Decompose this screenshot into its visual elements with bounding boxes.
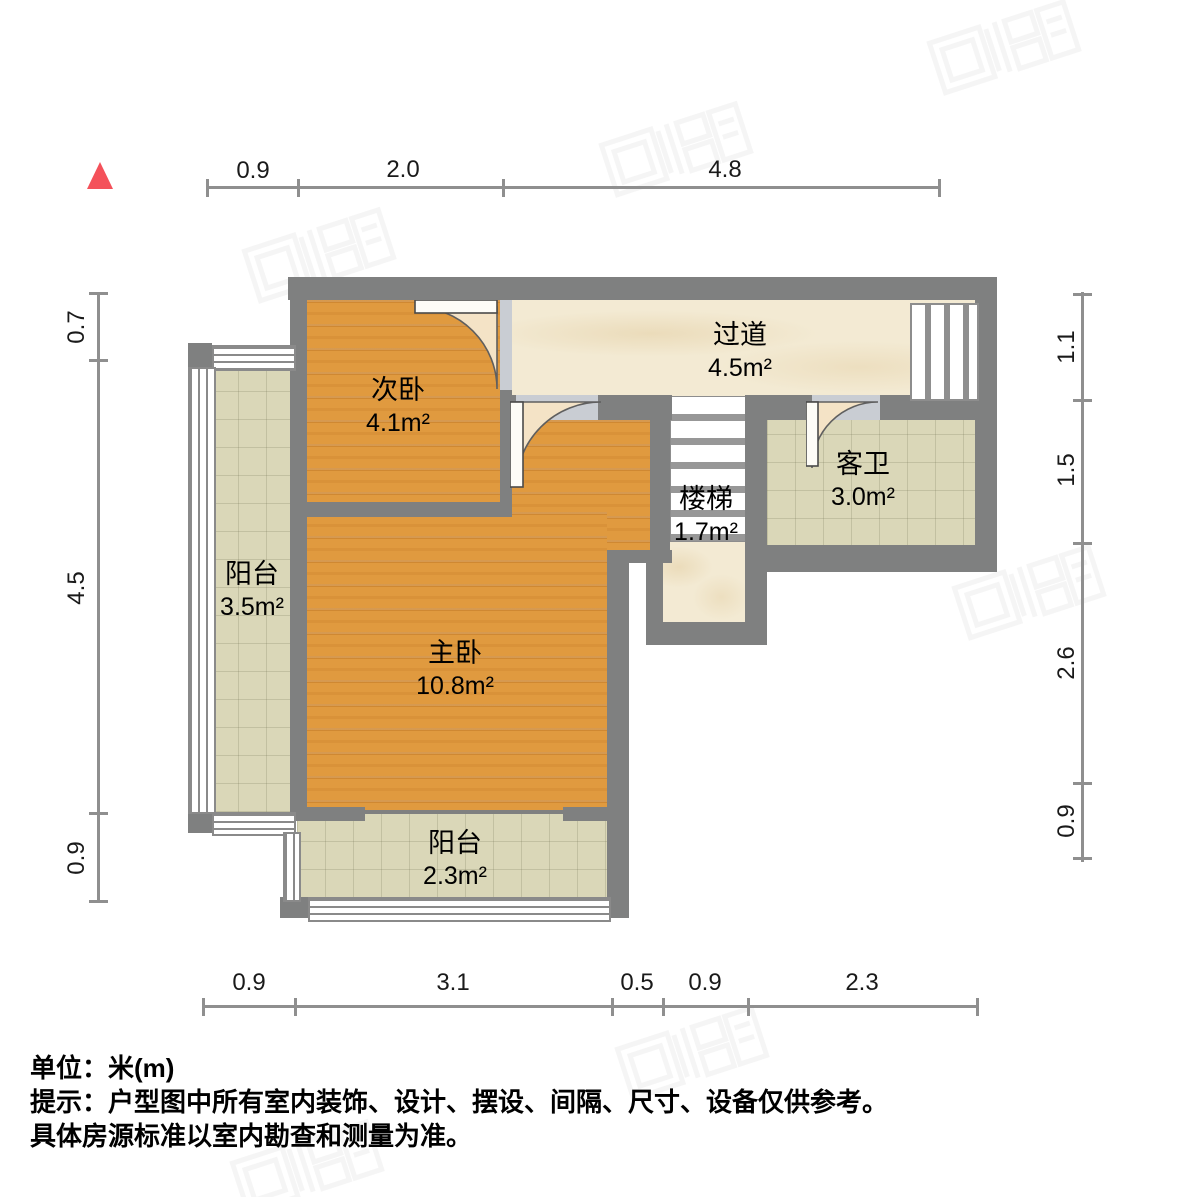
staircase-upper-flight [910,303,979,401]
dimension-tick [294,998,297,1016]
dimension-value: 0.9 [63,841,91,874]
watermark [923,0,1088,103]
dimension-value: 0.9 [236,157,269,185]
window-balcony-bottom-side [283,832,301,902]
disclaimer-line-2: 具体房源标准以室内勘查和测量为准。 [30,1119,888,1153]
dimension-value: 3.1 [436,969,469,997]
dimension-tick [1073,293,1092,296]
dimension-value: 0.9 [1053,804,1081,837]
disclaimer-line-1: 提示：户型图中所有室内装饰、设计、摆设、间隔、尺寸、设备仅供参考。 [30,1085,888,1119]
dimension-tick [938,179,941,197]
room-area: 2.3m² [423,860,487,893]
room-label-guest-bathroom: 客卫 3.0m² [831,448,895,514]
dimension-tick [206,179,209,197]
room-name: 客卫 [831,448,895,481]
wall-block [188,343,212,368]
room-area: 10.8m² [416,670,494,703]
dimension-tick [1073,857,1092,860]
wall-block [563,807,607,821]
wall-bathroom-bottom [745,545,997,572]
dimension-tick [89,900,108,903]
north-indicator-icon [87,162,113,189]
dimension-value: 1.1 [1053,330,1081,363]
dimension-tick [89,359,108,362]
dimension-line [1081,292,1084,862]
dimension-tick [1073,542,1092,545]
dimension-value: 0.9 [688,969,721,997]
room-name: 楼梯 [674,483,738,516]
wall-stairs-right [745,395,767,645]
dimension-value: 0.9 [232,969,265,997]
wall-left-bedrooms [290,300,307,810]
room-name: 主卧 [416,637,494,670]
window-balcony-left-side [188,367,216,814]
door-master-bedroom [510,398,605,493]
dimension-line [207,186,940,189]
dimension-value: 4.8 [708,156,741,184]
wall-top [288,277,997,300]
room-name: 阳台 [220,558,284,591]
dimension-value: 2.3 [845,969,878,997]
window-balcony-bottom [308,897,611,922]
room-label-stairs: 楼梯 1.7m² [674,483,738,549]
dimension-value: 1.5 [1053,453,1081,486]
room-name: 次卧 [366,374,430,407]
floor-plan-canvas: 0.9 2.0 4.8 0.9 3.1 0.5 0.9 2.3 0.7 4.5 … [0,0,1184,1197]
wall-stairs-left [650,395,670,555]
room-area: 3.0m² [831,481,895,514]
wall-block [290,807,365,821]
dimension-tick [89,292,108,295]
room-area: 4.5m² [708,352,772,385]
dimension-tick [502,179,505,197]
dimension-value: 0.7 [63,310,91,343]
room-name: 阳台 [423,827,487,860]
dimension-value: 2.0 [386,156,419,184]
dimension-tick [747,998,750,1016]
dimension-tick [1073,399,1092,402]
room-area: 1.7m² [674,516,738,549]
dimension-line [97,293,100,902]
dimension-value: 0.5 [620,969,653,997]
footer-notes: 单位：米(m) 提示：户型图中所有室内装饰、设计、摆设、间隔、尺寸、设备仅供参考… [30,1051,888,1153]
dimension-tick [202,998,205,1016]
dimension-tick [976,998,979,1016]
room-name: 过道 [708,319,772,352]
room-label-balcony-bottom: 阳台 2.3m² [423,827,487,893]
window-balcony-left-top [212,345,296,371]
dimension-tick [662,998,665,1016]
wall-master-right [607,550,629,918]
room-label-hallway: 过道 4.5m² [708,319,772,385]
dimension-tick [89,812,108,815]
dimension-value: 2.6 [1053,646,1081,679]
wall-second-bedroom-bottom [290,502,512,517]
room-label-second-bedroom: 次卧 4.1m² [366,374,430,440]
room-area: 3.5m² [220,591,284,624]
dimension-tick [611,998,614,1016]
wall-stairwell-bottom [646,622,767,645]
dimension-value: 4.5 [63,571,91,604]
dimension-tick [297,179,300,197]
dimension-line [203,1005,978,1008]
dimension-tick [1073,782,1092,785]
room-label-balcony-left: 阳台 3.5m² [220,558,284,624]
room-area: 4.1m² [366,407,430,440]
room-label-master-bedroom: 主卧 10.8m² [416,637,494,703]
unit-note: 单位：米(m) [30,1051,888,1085]
